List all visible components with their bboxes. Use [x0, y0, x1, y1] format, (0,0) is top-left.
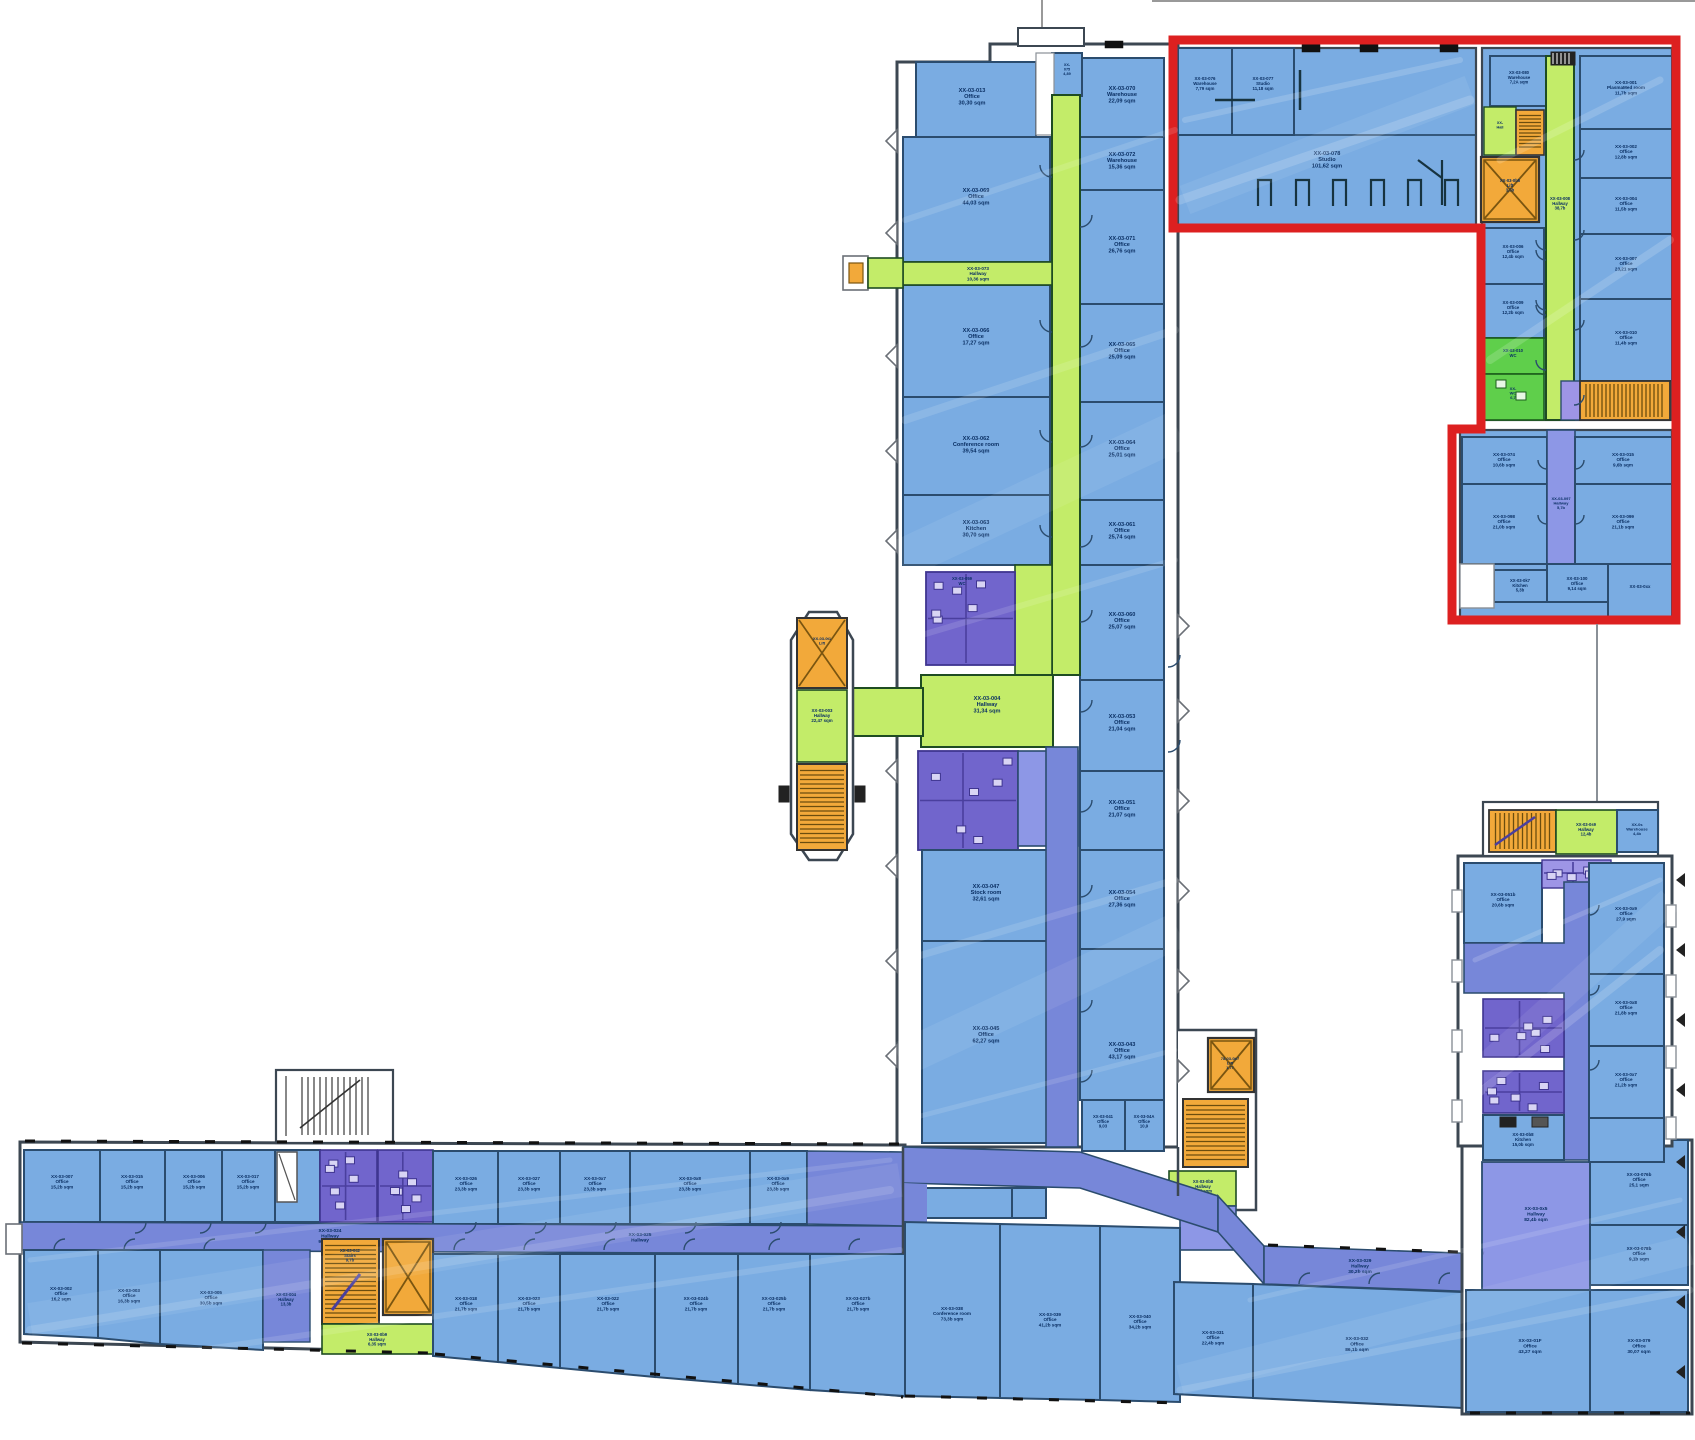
svg-text:XX-03-003Hallway22,47 sqm: XX-03-003Hallway22,47 sqm	[811, 708, 833, 723]
svg-text:XX-03-072Warehouse15,36 sqm: XX-03-072Warehouse15,36 sqm	[1107, 152, 1137, 170]
svg-text:XX-03-0x5Hallway82,4b sqm: XX-03-0x5Hallway82,4b sqm	[1524, 1206, 1548, 1223]
svg-text:XX-Hall: XX-Hall	[1497, 121, 1504, 129]
svg-text:XX-03-080Warehouse7,2A sqm: XX-03-080Warehouse7,2A sqm	[1508, 70, 1531, 85]
svg-text:XX-0754,89: XX-0754,89	[1063, 63, 1071, 76]
svg-text:XX-03-0b9Hallway6,35 sqm: XX-03-0b9Hallway6,35 sqm	[367, 1332, 388, 1347]
svg-text:XX-03-076Warehouse7,79 sqm: XX-03-076Warehouse7,79 sqm	[1193, 76, 1217, 91]
svg-text:XX-03-0b8Kitchen15,0b sqm: XX-03-0b8Kitchen15,0b sqm	[1512, 1132, 1534, 1147]
svg-text:XX-03-047Stock room32,61 sqm: XX-03-047Stock room32,61 sqm	[971, 884, 1002, 902]
svg-text:XX-03-004Hallway31,34 sqm: XX-03-004Hallway31,34 sqm	[973, 696, 1001, 714]
svg-text:XX-03-073Hallway10,36 sqm: XX-03-073Hallway10,36 sqm	[967, 266, 990, 281]
svg-text:XX-03-070Warehouse22,09 sqm: XX-03-070Warehouse22,09 sqm	[1107, 86, 1137, 104]
svg-text:XX-03-0xx: XX-03-0xx	[1630, 584, 1652, 589]
